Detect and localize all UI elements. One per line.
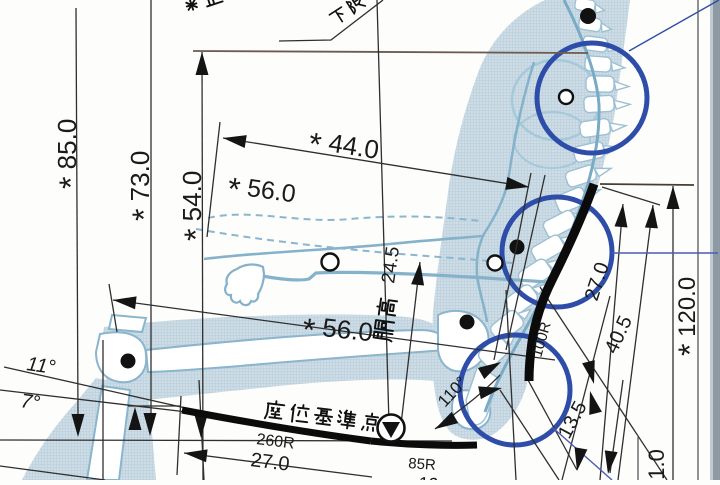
svg-text:71.0: 71.0 [644,449,669,480]
svg-text:7°: 7° [19,390,41,414]
svg-text:27.0: 27.0 [249,449,290,476]
svg-text:19: 19 [418,473,440,480]
svg-text:85R: 85R [408,455,437,474]
svg-text:11°: 11° [25,353,57,379]
